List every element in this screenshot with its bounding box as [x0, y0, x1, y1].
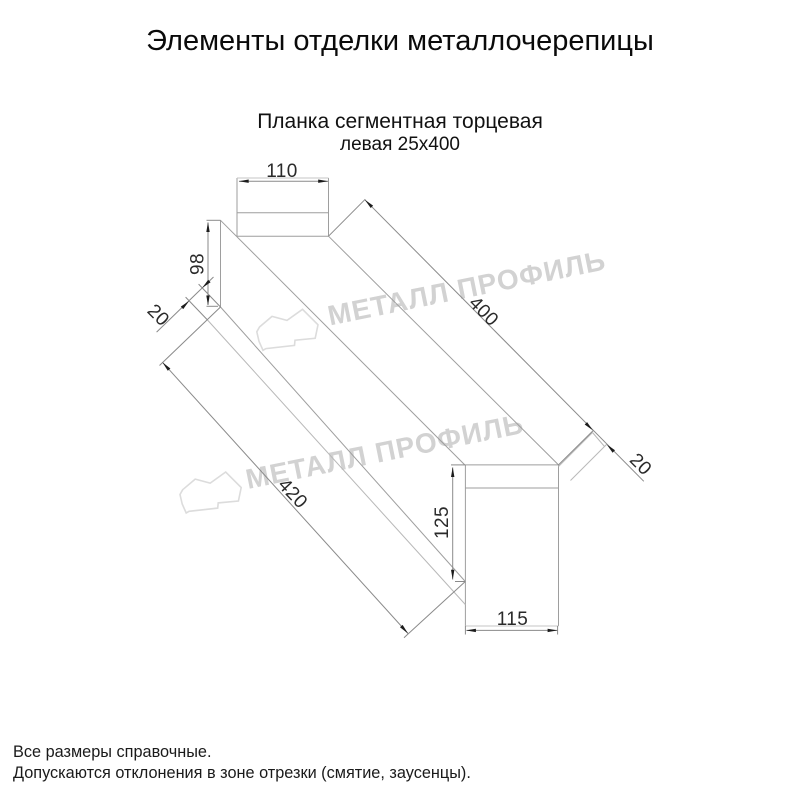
svg-text:98: 98 [188, 253, 209, 275]
svg-text:20: 20 [143, 300, 173, 330]
svg-text:125: 125 [432, 506, 453, 539]
svg-text:МЕТАЛЛ ПРОФИЛЬ: МЕТАЛЛ ПРОФИЛЬ [325, 245, 608, 332]
svg-text:115: 115 [497, 609, 529, 630]
svg-text:110: 110 [266, 161, 298, 182]
svg-text:20: 20 [625, 450, 655, 480]
